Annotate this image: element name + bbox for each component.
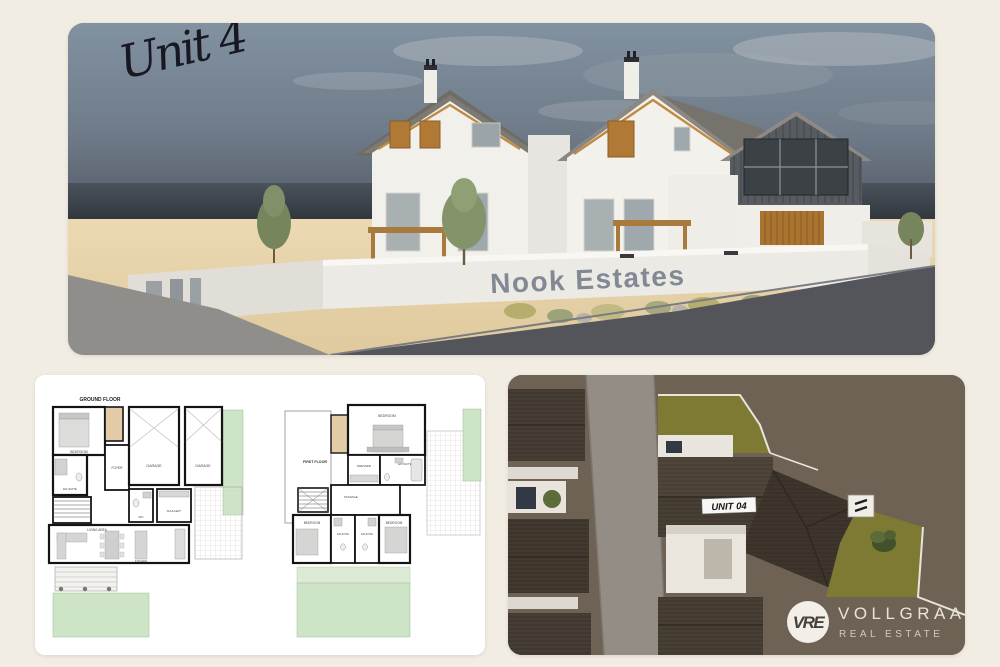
aerial-panel: UNIT 04 VRE VOLLGRAAFF REAL ESTATE (508, 375, 965, 655)
unit-label-text: UNIT 04 (711, 501, 747, 513)
chimney (424, 65, 437, 103)
window (516, 487, 536, 509)
label-bedroom-main: BEDROOM (378, 414, 396, 418)
aerial-scene: UNIT 04 VRE VOLLGRAAFF REAL ESTATE (508, 375, 965, 655)
label-garage-right: GARAGE (195, 464, 211, 468)
boundary-wall (508, 597, 578, 609)
logo-monogram: VRE (793, 613, 826, 632)
toilet-icon (363, 544, 368, 550)
white-volume (668, 175, 738, 261)
roof-vent (848, 495, 874, 517)
entry-niche (105, 407, 123, 441)
shower-icon (334, 518, 342, 526)
wall-window (190, 278, 201, 305)
lawn-strip (463, 409, 481, 481)
kitchen-island-icon (135, 531, 147, 559)
label-bedroom-left: BEDROOM (304, 521, 321, 525)
label-passage: PASSAGE (344, 495, 358, 499)
window (472, 123, 500, 147)
toilet-icon (384, 474, 389, 481)
ground-floor-title: GROUND FLOOR (79, 397, 120, 403)
lawn (53, 593, 149, 637)
logo: VRE VOLLGRAAFF REAL ESTATE (787, 601, 965, 643)
label-garage-left: GARAGE (146, 464, 162, 468)
dining-table-icon (105, 531, 119, 559)
bed-icon (385, 527, 407, 553)
first-floor-title: FIRST FLOOR (303, 460, 327, 464)
house-connector (528, 135, 570, 261)
shower-icon (368, 518, 376, 526)
window (390, 121, 410, 148)
label-kitchen: KITCHEN (135, 559, 147, 563)
patio (195, 487, 242, 559)
label-en-suite-left: EN-SUITE (337, 533, 349, 536)
label-en-suite: EN SUITE (63, 487, 77, 491)
label-bedroom-right: BEDROOM (386, 521, 403, 525)
wardrobe-icon (350, 475, 378, 482)
stairs (298, 488, 328, 512)
shower-icon (55, 459, 67, 475)
toilet-icon (133, 499, 139, 507)
label-dresser: DRESSER (357, 464, 371, 468)
window (608, 121, 634, 157)
window (420, 121, 440, 148)
window (674, 127, 690, 151)
floorplans-drawing: GROUND FLOOR BEDROOM EN SUITE FOYER (35, 375, 485, 655)
glass-door (584, 199, 614, 251)
label-foyer: FOYER (112, 466, 124, 470)
kitchen-counter-icon (175, 529, 185, 559)
label-bedroom: BEDROOM (70, 450, 88, 454)
room-garage-right (185, 407, 222, 485)
lawn (297, 583, 410, 637)
stair-void (331, 415, 349, 453)
basin-icon (143, 492, 151, 498)
label-wc: WC (139, 515, 145, 519)
hero-render-panel: Nook Estates (68, 23, 935, 355)
unit-label: UNIT 04 (702, 497, 756, 514)
hero-render-scene: Nook Estates (68, 23, 935, 355)
toilet-icon (341, 544, 346, 550)
bathtub-icon (411, 459, 422, 481)
boundary-wall (508, 467, 578, 479)
toilet-icon (76, 473, 82, 481)
logo-subtitle: REAL ESTATE (839, 629, 943, 640)
label-scullery: SCULLERY (167, 509, 182, 513)
passage (331, 485, 400, 515)
room-garage-left (129, 407, 179, 485)
tree (543, 490, 561, 508)
bed-icon (296, 529, 318, 555)
label-en-suite-right: EN-SUITE (361, 533, 373, 536)
window (666, 441, 682, 453)
stairs (53, 497, 91, 523)
floorplans-panel: GROUND FLOOR BEDROOM EN SUITE FOYER (35, 375, 485, 655)
logo-name: VOLLGRAAFF (838, 604, 965, 623)
label-living-area: LIVING AREA (87, 528, 108, 532)
glass-door (386, 193, 420, 251)
deck (55, 567, 117, 591)
chimney (624, 57, 639, 99)
bed-icon (59, 419, 89, 447)
lawn-light (297, 567, 410, 583)
basin-icon (395, 458, 403, 463)
courtyard-recess (704, 539, 732, 579)
